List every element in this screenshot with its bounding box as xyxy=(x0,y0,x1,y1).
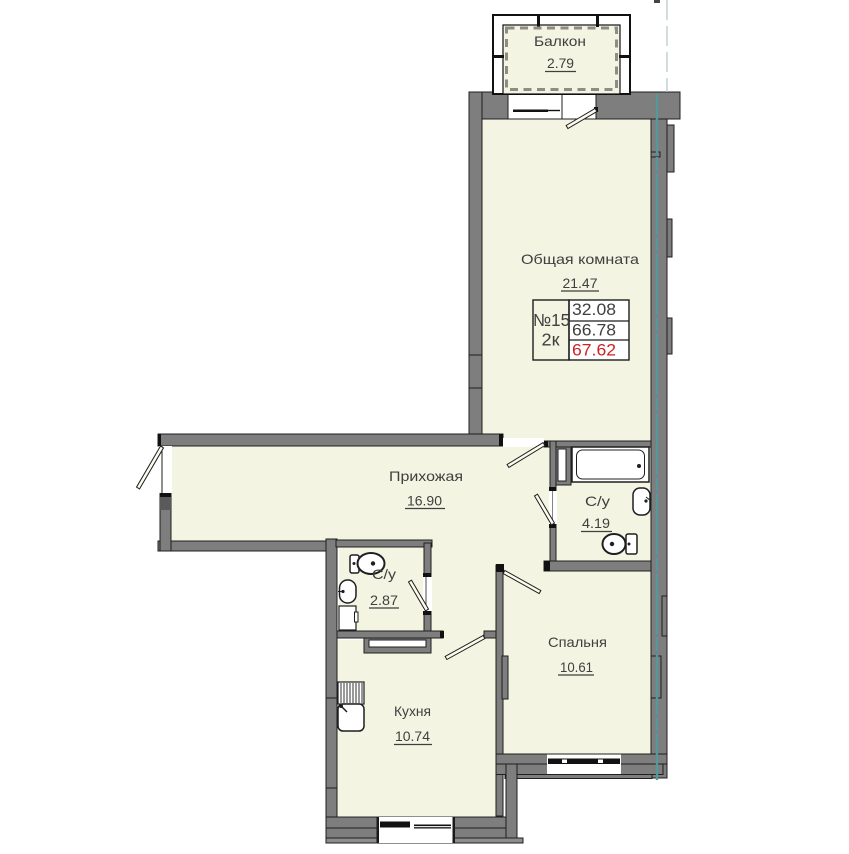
svg-text:№15: №15 xyxy=(533,310,570,330)
svg-text:16.90: 16.90 xyxy=(407,493,442,509)
svg-text:4.19: 4.19 xyxy=(582,515,610,531)
svg-text:2к: 2к xyxy=(542,330,560,350)
svg-text:С/у: С/у xyxy=(372,566,396,582)
svg-text:67.62: 67.62 xyxy=(572,341,616,360)
svg-text:С/у: С/у xyxy=(585,493,610,509)
svg-text:Прихожая: Прихожая xyxy=(389,468,463,484)
svg-text:21.47: 21.47 xyxy=(563,275,598,291)
svg-text:Кухня: Кухня xyxy=(394,703,431,719)
svg-text:10.61: 10.61 xyxy=(560,659,593,675)
svg-text:Балкон: Балкон xyxy=(534,33,586,49)
svg-text:2.87: 2.87 xyxy=(370,592,398,608)
svg-text:10.74: 10.74 xyxy=(395,728,430,744)
svg-text:Спальня: Спальня xyxy=(548,634,607,650)
svg-text:32.08: 32.08 xyxy=(572,300,616,319)
svg-text:Общая комната: Общая комната xyxy=(521,251,639,267)
svg-text:66.78: 66.78 xyxy=(572,321,616,340)
svg-text:2.79: 2.79 xyxy=(547,55,574,71)
